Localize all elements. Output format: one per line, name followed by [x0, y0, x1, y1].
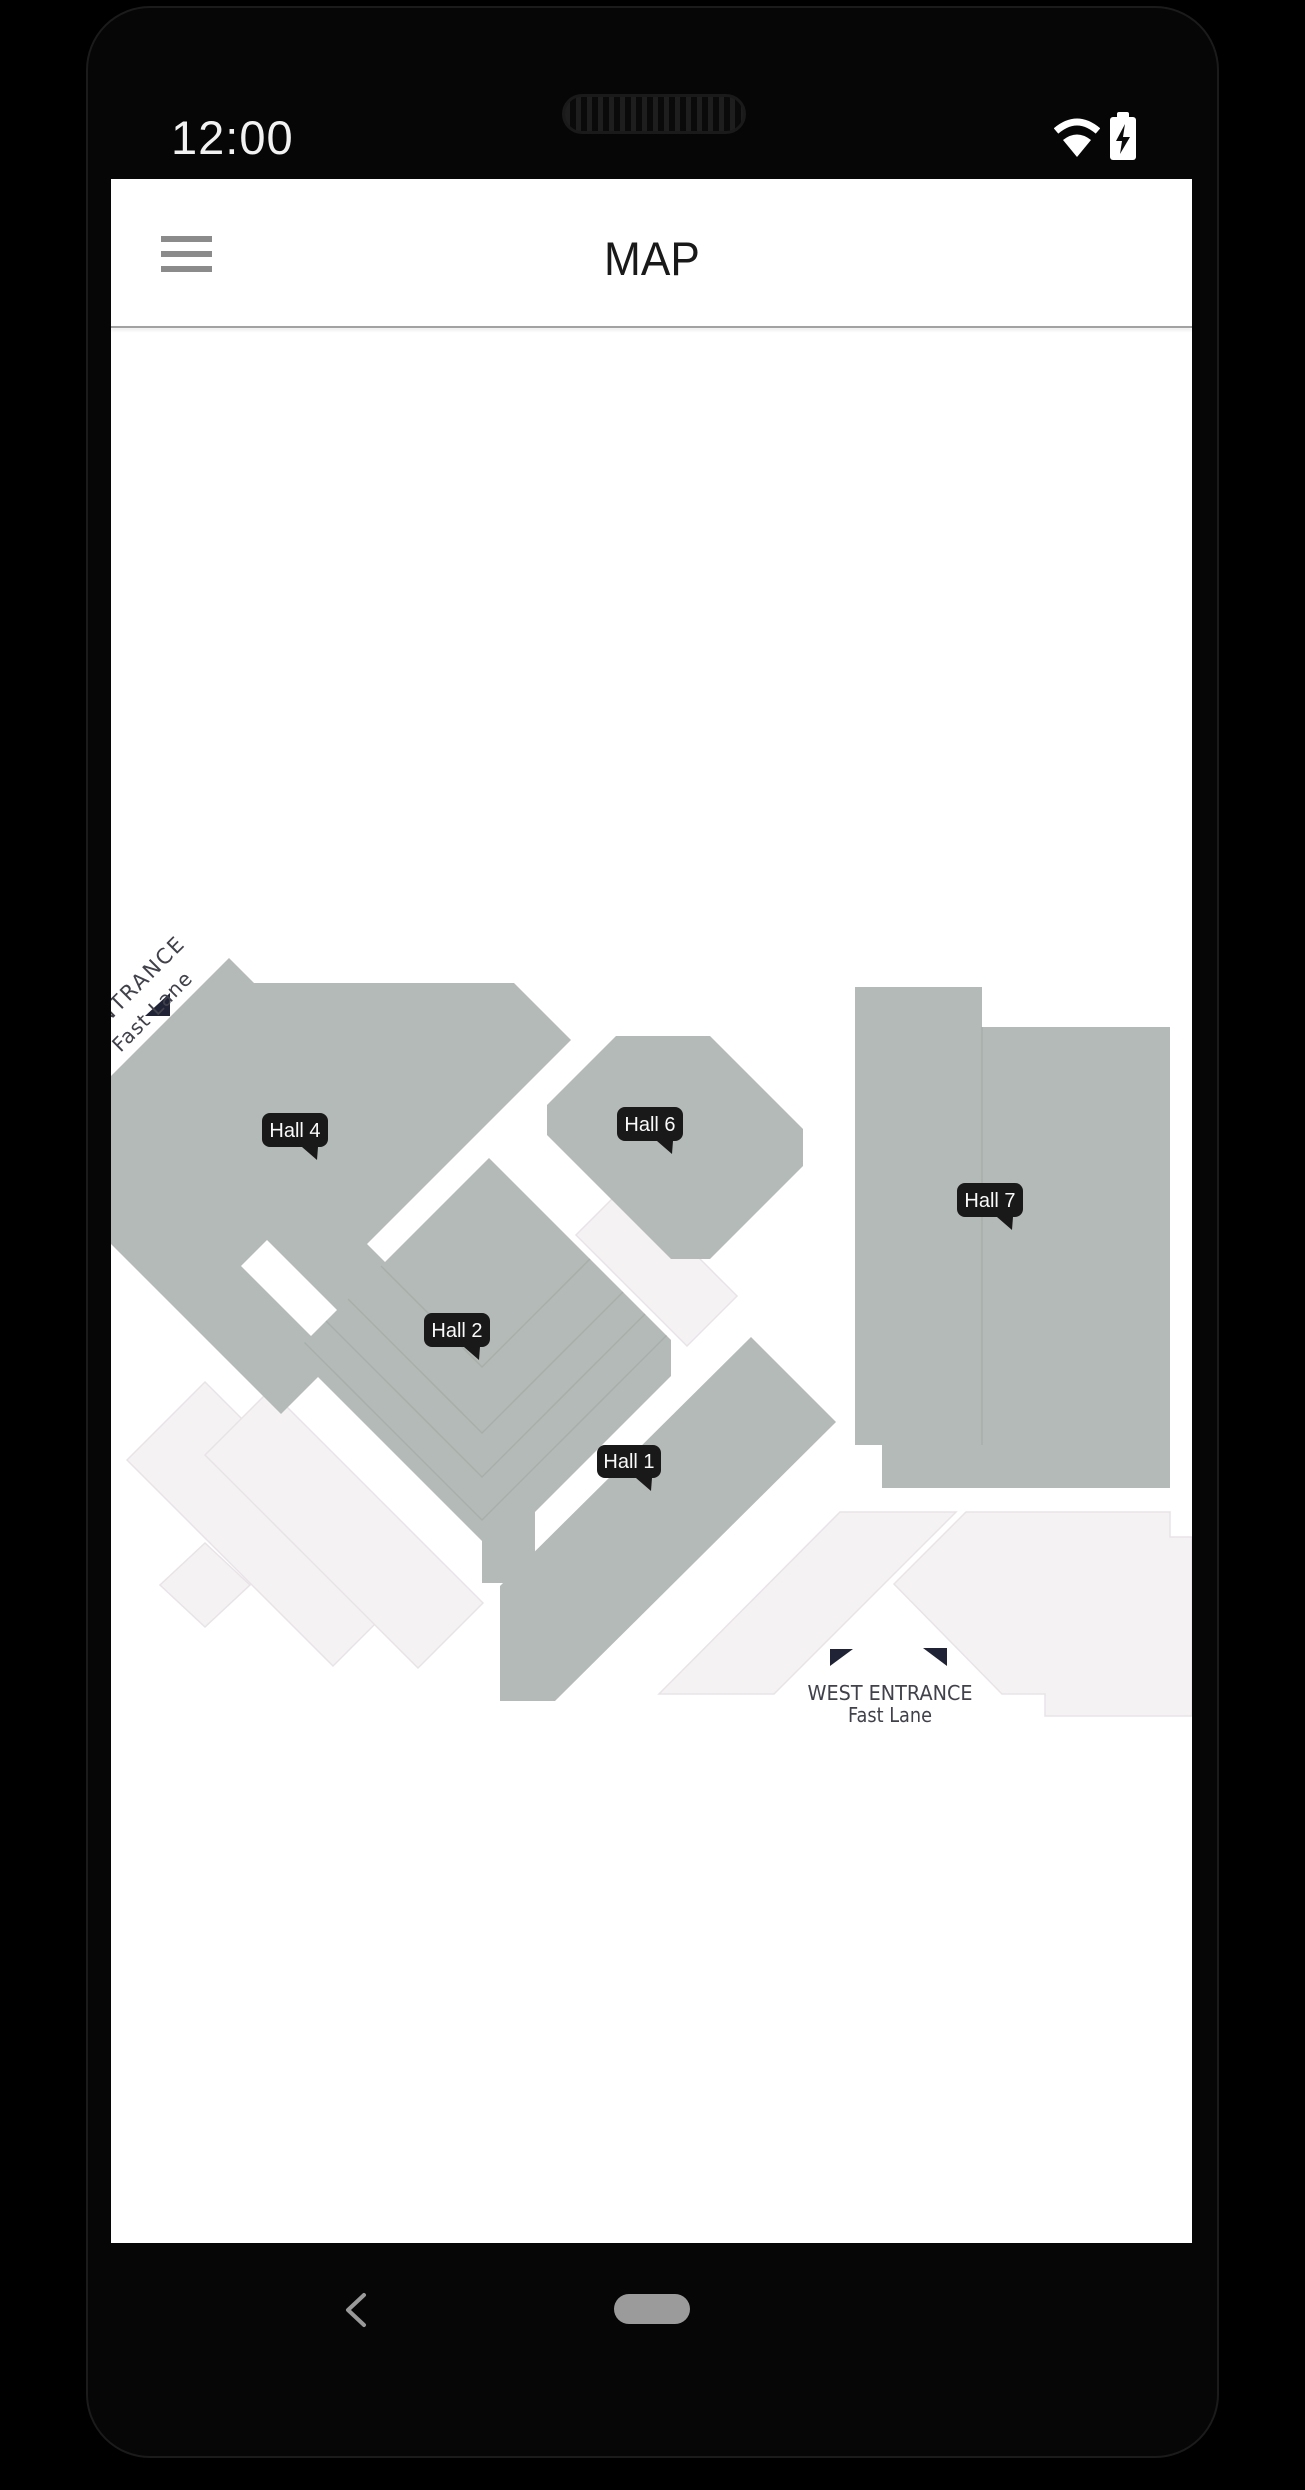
back-icon[interactable]	[342, 2292, 370, 2328]
wifi-icon	[1054, 116, 1100, 160]
west-entrance-subtitle: Fast Lane	[848, 1703, 932, 1727]
app-screen: MAP	[111, 179, 1192, 2243]
page-title: MAP	[111, 231, 1192, 286]
svg-text:Hall 2: Hall 2	[431, 1320, 482, 1342]
speaker-grille-icon	[562, 94, 746, 134]
home-indicator-pill[interactable]	[614, 2294, 690, 2324]
app-bar: MAP	[111, 179, 1192, 326]
west-entrance-arrow-right-icon	[923, 1648, 947, 1666]
map-canvas[interactable]: ENTRANCE Fast Lane WEST ENTRANCE Fast La…	[111, 330, 1192, 2243]
svg-text:Hall 6: Hall 6	[624, 1114, 675, 1136]
appbar-divider	[111, 326, 1192, 328]
west-entrance-title: WEST ENTRANCE	[808, 1681, 973, 1705]
west-entrance-arrow-left-icon	[830, 1649, 853, 1666]
status-time: 12:00	[171, 110, 294, 165]
battery-charging-icon	[1108, 112, 1138, 160]
svg-text:Hall 7: Hall 7	[964, 1190, 1015, 1212]
svg-text:Hall 4: Hall 4	[269, 1120, 320, 1142]
svg-text:Hall 1: Hall 1	[603, 1451, 654, 1473]
